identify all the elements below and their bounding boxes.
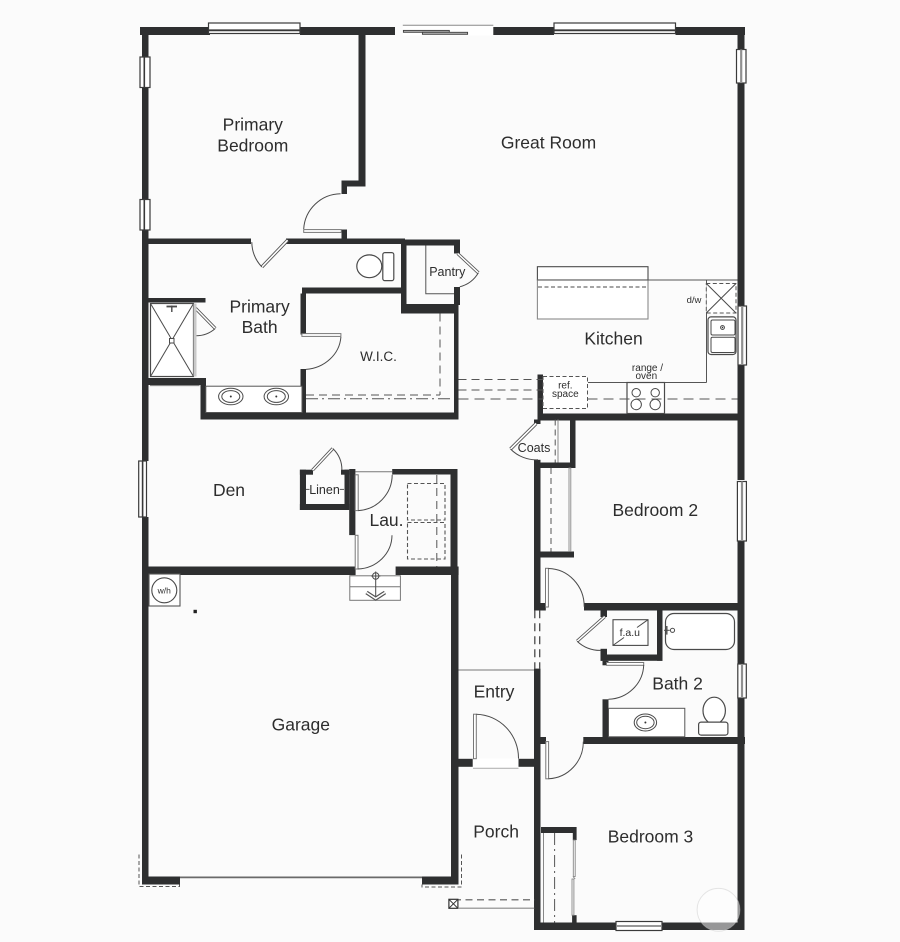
svg-text:oven: oven [635,371,657,382]
svg-text:Den: Den [213,480,245,500]
svg-text:d/w: d/w [687,295,702,306]
svg-text:space: space [552,389,579,400]
svg-text:Linen: Linen [309,483,340,497]
svg-text:Garage: Garage [272,715,330,735]
svg-text:Primary: Primary [223,115,284,135]
svg-text:Bedroom: Bedroom [217,136,288,156]
svg-text:Porch: Porch [473,822,519,842]
svg-text:Kitchen: Kitchen [584,329,642,349]
svg-text:Coats: Coats [518,441,551,455]
svg-text:w/h: w/h [157,585,172,595]
svg-text:Primary: Primary [229,297,290,317]
svg-text:f.a.u: f.a.u [620,627,641,639]
svg-text:W.I.C.: W.I.C. [360,349,397,364]
svg-text:Pantry: Pantry [429,265,466,279]
svg-text:Great Room: Great Room [501,133,596,153]
svg-text:Bath: Bath [242,317,278,337]
svg-text:Entry: Entry [474,682,515,702]
svg-text:Lau.: Lau. [369,510,403,530]
svg-text:Bedroom 2: Bedroom 2 [612,500,698,520]
svg-text:Bath 2: Bath 2 [652,674,703,694]
svg-text:Bedroom 3: Bedroom 3 [608,827,694,847]
